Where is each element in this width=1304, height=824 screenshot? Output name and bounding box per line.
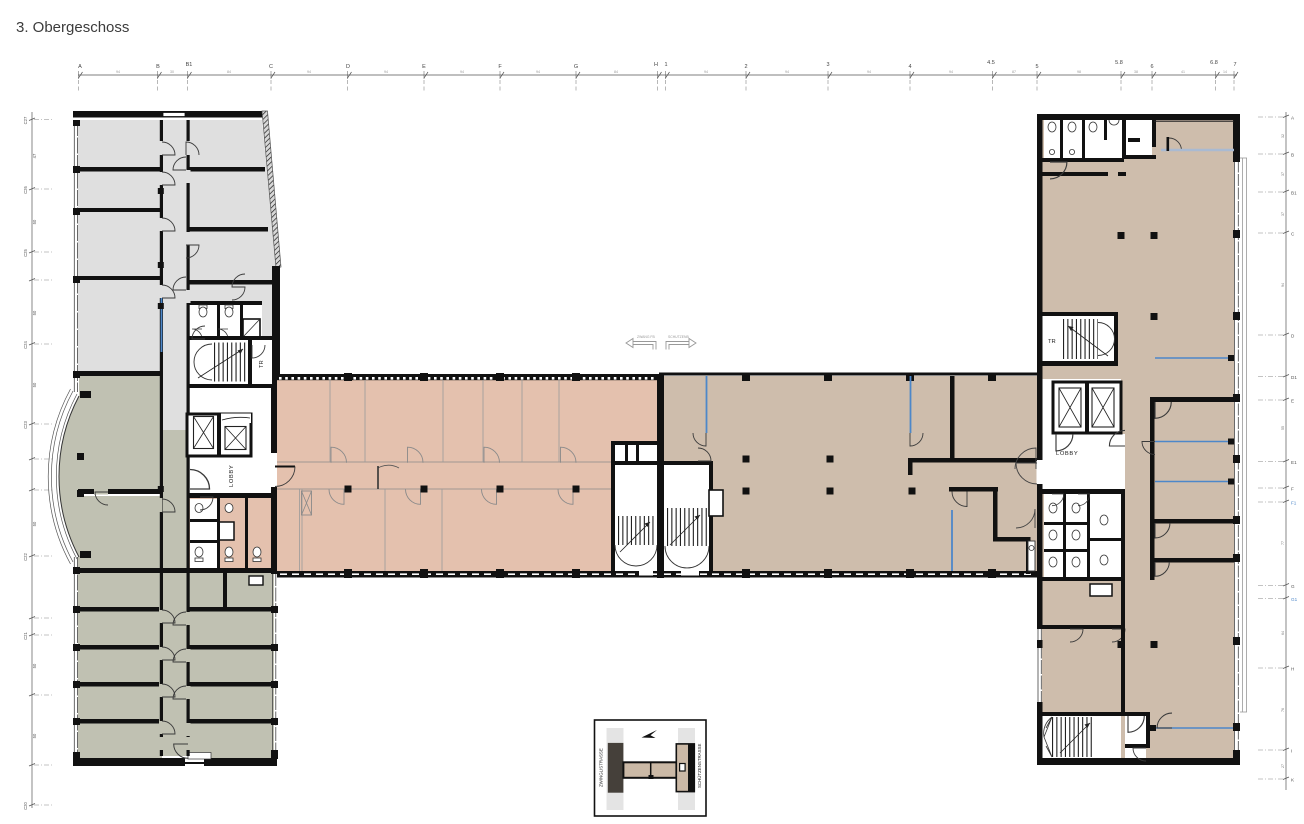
svg-text:50: 50 — [32, 382, 37, 387]
svg-text:84: 84 — [614, 70, 618, 74]
svg-text:D1: D1 — [1291, 375, 1297, 380]
svg-text:77: 77 — [1281, 541, 1285, 545]
svg-text:37: 37 — [1281, 212, 1285, 216]
svg-text:3. Obergeschoss: 3. Obergeschoss — [16, 19, 129, 36]
svg-text:B1: B1 — [1291, 191, 1297, 196]
svg-text:C24: C24 — [23, 340, 28, 348]
svg-text:37: 37 — [1281, 172, 1285, 176]
svg-text:76: 76 — [1281, 708, 1285, 712]
svg-text:32: 32 — [1281, 134, 1285, 138]
svg-text:5.8: 5.8 — [1115, 60, 1123, 66]
svg-text:94: 94 — [384, 70, 388, 74]
svg-text:C22: C22 — [23, 552, 28, 560]
svg-text:94: 94 — [785, 70, 789, 74]
svg-text:G1: G1 — [1291, 597, 1298, 602]
svg-text:C21: C21 — [23, 631, 28, 639]
svg-text:64: 64 — [1281, 631, 1285, 635]
svg-text:B: B — [1291, 153, 1294, 158]
svg-text:94: 94 — [536, 70, 540, 74]
svg-text:2: 2 — [744, 64, 747, 70]
svg-text:94: 94 — [949, 70, 953, 74]
svg-text:H: H — [1291, 667, 1294, 672]
svg-text:94: 94 — [460, 70, 464, 74]
svg-text:41: 41 — [1181, 70, 1185, 74]
svg-text:G: G — [574, 64, 578, 70]
svg-text:C27: C27 — [23, 116, 28, 124]
svg-text:94: 94 — [704, 70, 708, 74]
svg-text:LOBBY: LOBBY — [229, 465, 235, 487]
svg-text:C23: C23 — [23, 420, 28, 428]
svg-text:TR: TR — [1048, 339, 1056, 345]
svg-text:94: 94 — [867, 70, 871, 74]
svg-text:I: I — [1291, 749, 1292, 754]
svg-text:50: 50 — [32, 521, 37, 526]
svg-text:50: 50 — [32, 310, 37, 315]
svg-text:87: 87 — [1012, 70, 1016, 74]
svg-text:5: 5 — [1035, 64, 1038, 70]
svg-text:55: 55 — [1281, 426, 1285, 430]
svg-text:F: F — [1291, 487, 1294, 492]
svg-text:1: 1 — [664, 62, 667, 68]
svg-text:C20: C20 — [23, 801, 28, 809]
svg-text:D: D — [346, 64, 350, 70]
svg-text:14: 14 — [1223, 70, 1227, 74]
svg-text:B1: B1 — [186, 62, 193, 68]
svg-text:E: E — [1291, 399, 1294, 404]
svg-text:47: 47 — [32, 153, 37, 158]
svg-text:SCHÜTZENSTRASSE: SCHÜTZENSTRASSE — [697, 744, 702, 788]
svg-text:50: 50 — [32, 733, 37, 738]
svg-text:LOBBY: LOBBY — [1056, 451, 1078, 457]
svg-text:F1: F1 — [1291, 501, 1297, 506]
svg-text:94: 94 — [1281, 283, 1285, 287]
svg-text:50: 50 — [32, 219, 37, 224]
svg-text:6: 6 — [1150, 64, 1153, 70]
svg-text:7: 7 — [1233, 62, 1236, 68]
svg-text:E: E — [422, 64, 426, 70]
svg-text:3: 3 — [826, 62, 829, 68]
svg-text:6.8: 6.8 — [1210, 60, 1218, 66]
svg-text:ZWINGLISTRASSE: ZWINGLISTRASSE — [599, 748, 604, 787]
svg-text:30: 30 — [170, 70, 174, 74]
svg-text:G: G — [1291, 584, 1295, 589]
svg-text:98: 98 — [1077, 70, 1081, 74]
svg-text:C25: C25 — [23, 248, 28, 256]
svg-text:A: A — [78, 64, 82, 70]
svg-text:4: 4 — [908, 64, 911, 70]
svg-text:94: 94 — [116, 70, 120, 74]
svg-text:4.5: 4.5 — [987, 60, 995, 66]
svg-text:H: H — [654, 62, 658, 68]
svg-text:27: 27 — [1281, 764, 1285, 768]
svg-text:ZWANG FB: ZWANG FB — [637, 335, 656, 339]
svg-text:TR: TR — [259, 360, 265, 368]
svg-text:84: 84 — [227, 70, 231, 74]
svg-text:SCHUTZENB: SCHUTZENB — [668, 335, 689, 339]
svg-text:94: 94 — [307, 70, 311, 74]
svg-text:C: C — [269, 64, 273, 70]
svg-text:38: 38 — [1134, 70, 1138, 74]
svg-text:50: 50 — [32, 663, 37, 668]
svg-text:E1: E1 — [1291, 460, 1297, 465]
svg-text:C26: C26 — [23, 185, 28, 193]
svg-text:B: B — [156, 64, 160, 70]
